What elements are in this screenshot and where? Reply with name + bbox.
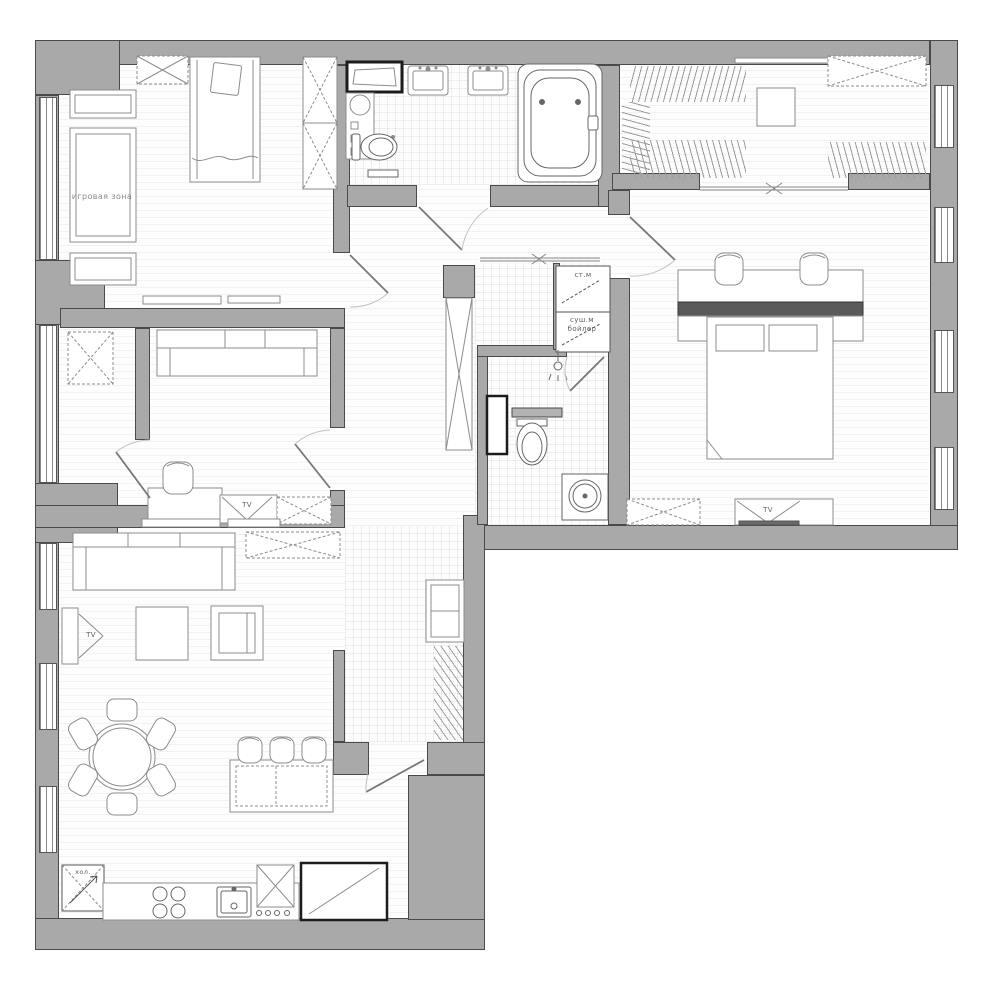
living-coffee-table — [136, 607, 188, 660]
hallway-sliding-door — [480, 254, 600, 264]
door-bathroom-1 — [419, 207, 488, 250]
living-armchair — [211, 606, 263, 660]
children-wardrobe-right — [303, 57, 337, 189]
bar-stools — [238, 737, 326, 763]
children-wardrobe-top — [137, 56, 188, 84]
bath1-bathtub — [518, 64, 602, 182]
label-fridge: хол. — [62, 868, 104, 876]
living-wall-shelves — [142, 519, 280, 527]
children-play-couch — [70, 128, 136, 242]
label-tv-living: TV — [78, 631, 104, 640]
apartment-floor-plan: игровая зона ст.м суш.м бойлер TV TV TV … — [0, 0, 1000, 1000]
master-stool-1 — [715, 253, 743, 285]
dining-table — [89, 724, 155, 790]
label-tv-middle: TV — [232, 501, 262, 510]
door-master — [630, 217, 675, 276]
door-bathroom-2 — [565, 357, 604, 391]
bath2-vanity — [562, 474, 608, 520]
bath2-toilet — [517, 419, 547, 465]
bath2-shower-head — [549, 350, 567, 381]
master-headboard — [678, 302, 863, 316]
bath1-sink-1 — [408, 66, 448, 95]
label-dryer-boiler: суш.м бойлер — [552, 316, 612, 334]
closet-ottoman — [757, 88, 795, 126]
loggia-wardrobe — [68, 332, 113, 384]
master-bed — [707, 317, 833, 459]
master-stool-2 — [800, 253, 828, 285]
children-bench-2 — [70, 253, 136, 285]
master-desk — [678, 270, 863, 302]
bath1-sink-2 — [468, 66, 508, 95]
living-overhead-cabinet — [246, 532, 340, 558]
living-sofa — [73, 533, 235, 590]
children-bench-1 — [70, 90, 136, 118]
bath2-shower-panel — [487, 396, 507, 454]
middle-chair — [163, 462, 193, 494]
middle-wardrobe — [277, 497, 331, 524]
label-tv-master: TV — [744, 506, 792, 515]
door-loggia — [116, 440, 150, 498]
label-washer: ст.м — [556, 271, 610, 280]
kitchen-tall-cabinet — [257, 865, 294, 907]
door-entry — [366, 760, 424, 792]
children-bed — [190, 57, 260, 182]
bath1-window-unit — [347, 62, 402, 92]
hall-cabinet — [446, 298, 472, 450]
bath1-toilet — [352, 134, 398, 177]
kitchen-island — [230, 760, 333, 812]
closet-sliding-door — [700, 183, 848, 194]
door-children — [350, 255, 388, 307]
closet-wardrobe-topright — [828, 56, 926, 86]
master-wardrobe — [627, 499, 700, 525]
kitchen-sink — [217, 887, 251, 917]
bath2-shower-screen — [512, 408, 562, 417]
middle-sofa — [157, 330, 317, 376]
furniture-layer — [0, 0, 1000, 1000]
door-middle-room — [295, 430, 330, 488]
entry-console — [426, 580, 464, 642]
children-shelves — [143, 296, 280, 304]
kitchen-oven-tower — [301, 863, 387, 920]
label-play-zone: игровая зона — [64, 192, 140, 202]
